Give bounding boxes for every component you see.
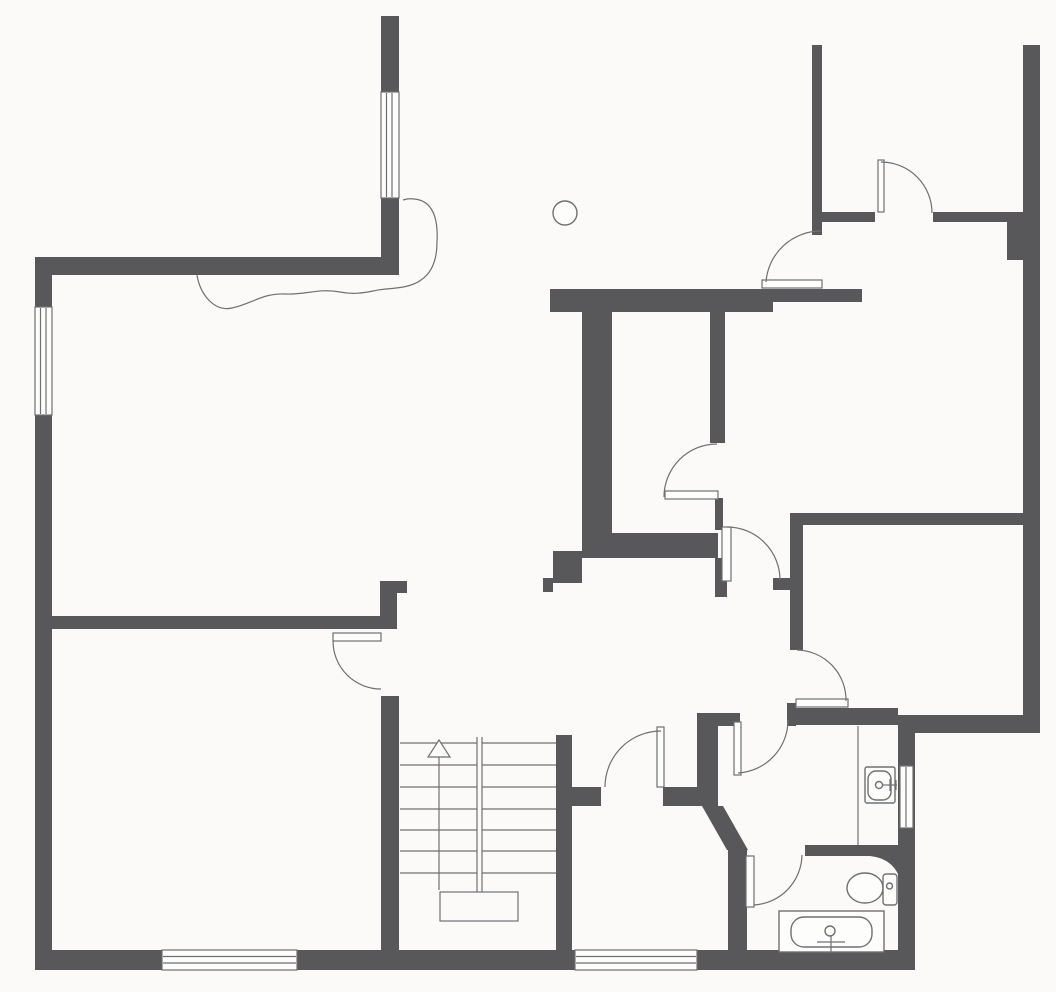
wall-right-main: [1023, 45, 1040, 717]
door-livingroom-leaf: [333, 633, 381, 641]
door-upper-room-arc: [766, 231, 821, 282]
wall-central-step-stub: [543, 578, 553, 592]
wall-central-bar: [612, 533, 718, 558]
window-bottom-1: [162, 950, 297, 970]
window-left: [35, 307, 52, 415]
wall-central-right: [710, 312, 725, 443]
stair-landing: [440, 892, 518, 921]
wall-top-thin: [773, 289, 862, 302]
wall-central-left: [582, 312, 612, 558]
wall-topleft-horizontal: [35, 257, 399, 275]
door-hall-leaf: [657, 727, 664, 787]
wall-bedroom-left: [790, 525, 803, 650]
wall-right-bottom-thick: [898, 715, 1040, 733]
wall-right-notch: [1007, 217, 1023, 260]
wall-stairs-left: [381, 696, 399, 950]
door-livingroom-arc: [333, 641, 381, 689]
floor-plan-drawing: [0, 0, 1056, 992]
wall-left-main: [35, 415, 52, 950]
freeform-opening-squiggle: [197, 199, 437, 309]
wall-bathroom-left: [728, 848, 747, 970]
wall-stairs-right: [556, 735, 572, 970]
ceiling-lamp-symbol: [553, 201, 577, 225]
wall-bottom-center: [297, 950, 575, 970]
wall-middle-left-horizontal: [52, 616, 383, 629]
wall-stairs-stub: [572, 787, 601, 806]
bathtub-faucet-knob: [825, 926, 835, 936]
wall-topright-horizontal-a: [822, 212, 875, 222]
door-topright-arc: [881, 162, 932, 213]
wall-slanted: [702, 806, 748, 850]
wall-door-b-stub: [773, 578, 790, 590]
door-hall-arc: [605, 731, 661, 787]
door-sinkroom-leaf: [734, 722, 741, 775]
door-bedroom-leaf: [796, 699, 848, 707]
toilet-flush-button: [887, 883, 893, 889]
wall-door-a-stub: [715, 498, 723, 530]
door-closet-leaf: [665, 491, 718, 499]
wall-bathroom-rounded-corner: [870, 845, 898, 874]
toilet-bowl: [847, 873, 883, 903]
door-closet-arc: [664, 444, 717, 497]
wall-mid-stub: [397, 581, 407, 593]
door-topright-leaf: [878, 160, 884, 212]
wall-topright-vertical: [812, 45, 822, 235]
wall-hall-vertical: [697, 713, 718, 787]
wall-bathroom-top: [805, 845, 878, 856]
wall-hall-bottom: [663, 787, 718, 806]
window-bottom-2: [575, 950, 697, 970]
wall-top-thick: [550, 289, 773, 312]
sink-faucet-knob: [876, 782, 883, 789]
wall-bedroom-top: [790, 513, 1023, 525]
wall-bedroom-bottom: [796, 708, 898, 725]
door-sinkroom-arc: [738, 720, 788, 773]
wall-left-upper: [35, 275, 52, 307]
door-upper-room-leaf: [762, 280, 822, 288]
door-bathroom-leaf: [746, 856, 754, 907]
window-topleft: [381, 92, 399, 198]
wall-mid-vertical: [380, 581, 397, 629]
door-kitchen-leaf: [722, 527, 731, 581]
floor-plan-page: [0, 0, 1056, 992]
door-bathroom-arc: [754, 855, 802, 905]
door-bedroom-arc: [797, 650, 846, 701]
door-kitchen-arc: [727, 527, 780, 580]
wall-bottom-west: [35, 950, 162, 970]
wall-central-step: [553, 551, 582, 583]
wall-topleft-vertical-upper: [381, 16, 399, 92]
